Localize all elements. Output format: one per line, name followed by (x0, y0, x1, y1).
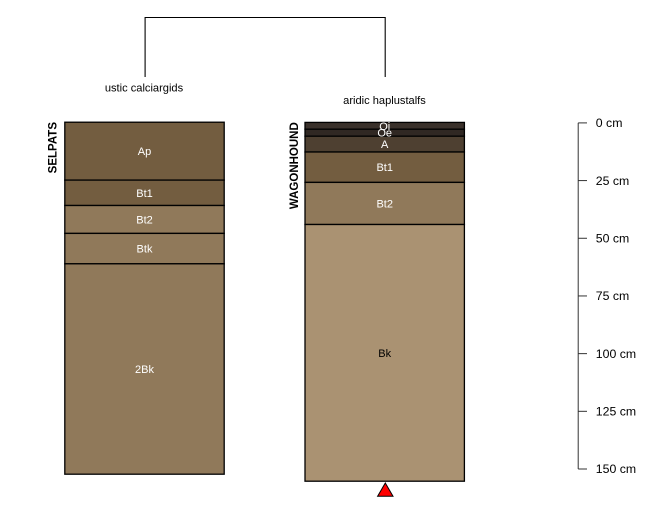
svg-text:100 cm: 100 cm (596, 347, 636, 361)
svg-text:2Bk: 2Bk (135, 364, 154, 376)
svg-text:Bt1: Bt1 (376, 162, 393, 174)
svg-text:125 cm: 125 cm (596, 405, 636, 419)
svg-text:Bt2: Bt2 (376, 198, 393, 210)
svg-text:Bt2: Bt2 (136, 215, 153, 227)
svg-text:SELPATS: SELPATS (48, 122, 60, 174)
svg-text:50 cm: 50 cm (596, 232, 630, 246)
svg-text:WAGONHOUND: WAGONHOUND (289, 122, 301, 209)
svg-text:0 cm: 0 cm (596, 116, 623, 130)
svg-text:aridic haplustalfs: aridic haplustalfs (343, 95, 426, 107)
svg-text:Btk: Btk (137, 244, 153, 256)
svg-text:75 cm: 75 cm (596, 289, 630, 303)
svg-text:Bt1: Bt1 (136, 188, 153, 200)
svg-text:Oe: Oe (377, 128, 392, 140)
svg-text:25 cm: 25 cm (596, 174, 630, 188)
svg-text:ustic calciargids: ustic calciargids (105, 83, 184, 95)
svg-text:A: A (381, 139, 389, 151)
svg-text:Ap: Ap (138, 146, 151, 158)
svg-text:Bk: Bk (378, 348, 391, 360)
svg-text:150 cm: 150 cm (596, 462, 636, 476)
